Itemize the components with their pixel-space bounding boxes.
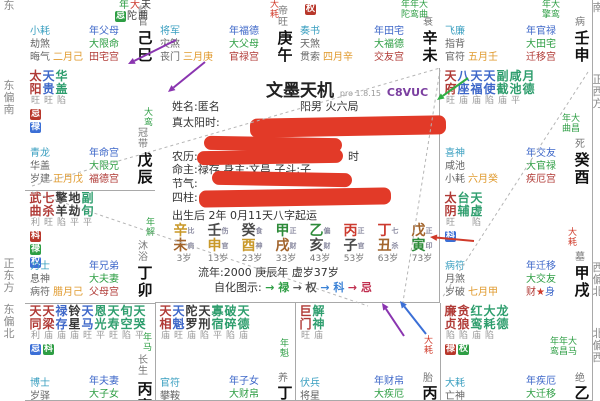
transformation-badge: 忌 [115,11,126,22]
ganzhi-label: 辛未 [422,30,438,64]
dayun-column[interactable]: 辛比未肩3岁 [168,224,200,264]
flow-year-line: 流年:2000 庚辰年 虚岁37岁 [198,266,339,279]
god-label: 攀鞍 [160,390,180,401]
god-label: 岁驿 [30,390,50,401]
god-label: 咸池 [445,160,465,173]
god-label: 贯索四月辛 [300,51,353,64]
flow-month-label: 五月壬 [468,52,498,63]
star: 龙德 [496,305,509,331]
ganzhi-label: 庚午 [277,30,293,64]
god-label: 灾煞 [160,38,180,51]
star: 天同利忌 [29,305,42,355]
transformation-badge: 忌 [30,109,41,120]
god-label: 官符五月壬 [445,51,498,64]
god-label: 月煞 [445,273,465,286]
star: 天魁旺 [172,305,185,342]
ganzhi-label: 癸酉 [574,152,590,186]
star: 七杀旺 [42,192,55,229]
star: 台辅 [457,192,470,218]
star-list: 天相庙天魁旺陀罗庙天刑陷寡宿平破碎陷天德庙 [159,305,250,342]
palace-name-label: 大财帛 [229,388,259,401]
palace-cell-丑[interactable]: 天相庙天魁旺陀罗庙天刑陷寡宿平破碎陷天德庙年魁官符攀鞍年子女大财帛养丁丑 [155,303,296,401]
palace-name-label: 交友宫 [374,51,404,64]
palace-cell-午[interactable]: 大耗将军灾煞丧门三月庚年福德大父母官禄宫帝旺庚午 [155,0,296,69]
star: 天府旺 [444,70,457,107]
god-label: 亡神 [445,390,465,401]
palace-name-label: 大田宅 [526,38,556,51]
star: 擎羊陷 [55,192,68,229]
life-stage-label: 衰 [422,17,434,28]
palace-name-label: 年夫妻 [89,375,119,388]
ganzhi-label: 丙寅 [137,381,153,401]
dayun-column[interactable]: 癸食酉神23岁 [236,224,268,264]
palace-name-label: 年兄弟 [89,260,119,273]
god-label: 大耗 [445,377,465,390]
life-stage-label: 沐浴 [137,241,149,263]
compass-label: 南 [592,2,600,14]
ganzhi-label: 己巳 [137,30,153,64]
star: 地劫平 [68,192,81,229]
ganzhi-label: 戊辰 [137,152,153,186]
palace-name-label: 年疾厄 [526,375,556,388]
palace-name-label: 大疾厄 [374,388,404,401]
star-list: 太阴旺科台辅天虚陷 [444,192,483,242]
ganzhi-label: 乙亥 [574,385,590,401]
god-label: 小耗 [30,25,50,38]
app-code: C8VUC [387,86,428,99]
transformation-badge: 忌 [30,344,41,355]
dayun-column[interactable]: 壬伤申官13岁 [202,224,234,264]
star: 天寿旺 [107,305,120,342]
palace-name-label: 大夫妻 [89,273,119,286]
god-label: 息神 [30,273,50,286]
star: 咸池平 [509,70,522,107]
life-stage-label: 养 [277,373,289,384]
palace-name-label: 迁移宫 [526,51,556,64]
name-line: 姓名:匿名 [172,100,220,113]
life-stage-label: 临官 [137,6,149,28]
palace-name-label: 年田宅 [374,25,404,38]
palace-name-label: 年迁移 [526,260,556,273]
redaction-bar [250,115,446,137]
star: 副截庙 [496,70,509,107]
palace-cell-卯[interactable]: 武曲利科禄权七杀旺擎羊陷地劫平副旬平年解力士息神病符腊月己年兄弟大夫妻父母宫沐浴… [25,190,156,304]
life-stage-label: 胎 [422,373,434,384]
transformation-badge: 权 [458,344,469,355]
star: 太阳旺忌禄 [29,70,42,133]
god-label: 丧门三月庚 [160,51,213,64]
palace-name-label: 大子女 [89,388,119,401]
redaction-bar [199,187,391,207]
god-label: 官符 [160,377,180,390]
dayun-column[interactable]: 丁七丑杀63岁 [372,224,404,264]
flow-month-label: 六月癸 [468,174,498,185]
palace-name-label: 疾厄宫 [526,173,556,186]
star: 陀罗庙 [185,305,198,342]
star: 天马旺 [81,305,94,342]
palace-name-label: 福德宫 [89,173,119,186]
transformation-badge: 禄 [30,122,41,133]
gender-bureau-line: 阳男 火六局 [300,100,359,113]
life-stage-label: 绝 [574,373,586,384]
star: 天德庙 [237,305,250,342]
god-label: 劫煞 [30,38,50,51]
palace-name-label: 财★身 [526,286,555,299]
star: 天刑陷 [198,305,211,342]
god-label: 华盖 [30,160,50,173]
palace-name-label: 大父母 [229,38,259,51]
god-label: 将军 [160,25,180,38]
star-list: 廉贞陷禄贪狼陷权红鸾庙大耗陷龙德 [444,305,509,355]
compass-label: 西偏北 [592,262,600,298]
flow-star-label: 擎鸾 [542,10,560,20]
god-label: 力士 [30,260,50,273]
star-list: 武曲利科禄权七杀旺擎羊陷地劫平副旬平 [29,192,94,268]
info-line: 四柱: [172,191,198,204]
flow-star-label: 大耗 [567,228,578,248]
flow-star-label: 年大 [542,0,560,10]
transformation-badge: 科 [30,231,41,242]
palace-cell-巳[interactable]: 年大天忌陀曲小耗劫煞晦气二月己年父母大限命田宅宫临官己巳 [25,0,156,69]
star: 红鸾庙 [470,305,483,342]
flow-star-label: 大鸾 [143,108,154,128]
life-stage-label: 帝旺 [277,6,289,28]
compass-label: 正西方 [592,74,600,110]
palace-cell-酉[interactable]: 天府旺八座庙天福庙天使陷副截庙咸池平月德年大曲昌喜神咸池小耗六月癸年交友大官禄疾… [440,68,593,191]
star-list: 巨门旺解神庙 [299,305,325,342]
star: 恩光平 [94,305,107,342]
star: 天虚陷 [470,192,483,229]
life-stage-label: 病 [574,17,586,28]
palace-cell-亥[interactable]: 廉贞陷禄贪狼陷权红鸾庙大耗陷龙德年年大鸾昌马大耗亡神年疾厄大迁移绝乙亥 [440,303,593,401]
god-label: 青龙 [30,147,50,160]
transformation-badge: 禄 [30,244,41,255]
star: 太阴旺科 [444,192,457,242]
star: 旬空陷 [120,305,133,342]
flow-star-label: 鸾昌马 [550,347,577,357]
flow-month-label: 腊月己 [53,287,83,298]
star: 天使陷 [483,70,496,107]
star: 解神庙 [312,305,325,342]
flow-month-label: 七月甲 [468,287,498,298]
star: 天梁庙科 [42,305,55,355]
dayun-column[interactable]: 丙正子官53岁 [338,224,370,264]
palace-cell-子[interactable]: 巨门旺解神庙大耗伏兵将星年财帛大疾厄胎丙子 [295,303,441,401]
palace-name-label: 年交友 [526,147,556,160]
god-label: 博士 [30,377,50,390]
transformation-badge: 科 [445,231,456,242]
god-label: 岁建正月戊 [30,173,83,186]
palace-cell-戌[interactable]: 太阴旺科台辅天虚陷大耗病符月煞岁破七月甲年迁移大交友财★身墓甲戌 [440,190,593,304]
star-list: 天同利忌天梁庙科禄存庙铃星庙天马旺恩光平天寿旺旬空陷天哭平 [29,305,146,355]
god-label: 指背 [445,38,465,51]
compass-label: 正东方 [3,258,15,294]
star: 华盖陷 [55,70,68,107]
god-label: 晦气二月己 [30,51,83,64]
ganzhi-label: 丁丑 [277,385,293,401]
info-line: 出生后 2年 0月11天八字起运 [172,209,317,222]
flow-month-label: 四月辛 [323,52,353,63]
palace-name-label: 大福德 [374,38,404,51]
star: 破碎陷 [224,305,237,342]
compass-label: 北偏西 [592,328,600,364]
star: 天相庙 [159,305,172,342]
life-stage-label: 死 [574,139,586,150]
info-line: 节气: [172,177,198,190]
palace-name-label: 官禄宫 [229,51,259,64]
flow-star-label: 年大 [562,114,580,124]
star: 副旬平 [81,192,94,229]
palace-name-label: 父母宫 [89,286,119,299]
palace-cell-辰[interactable]: 太阳旺忌禄天贵旺华盖陷大鸾青龙华盖岁建正月戊年命宫大限兄福德宫冠带戊辰 [25,68,156,191]
god-label: 岁破七月甲 [445,286,498,299]
app-title: 文墨天机 pro 1.8.15 C8VUC [266,76,428,101]
palace-name-label: 田宅宫 [89,51,119,64]
app-version: pro 1.8.15 [340,89,381,98]
palace-name-label: 大限兄 [89,160,119,173]
ganzhi-label: 丁卯 [137,265,153,299]
palace-name-label: 年父母 [89,25,119,38]
god-label: 伏兵 [300,377,320,390]
life-stage-label: 冠带 [137,128,149,150]
star: 廉贞陷禄 [444,305,457,355]
ziwei-astrology-app: 年大天忌陀曲小耗劫煞晦气二月己年父母大限命田宅宫临官己巳大耗将军灾煞丧门三月庚年… [0,0,600,400]
redaction-bar [212,171,352,187]
self-transformation-legend: 自化图示: → 禄 → 权 → 科 → 忌 [214,281,372,294]
dayun-column[interactable]: 戊正寅印73岁 [406,224,438,264]
transformation-badge: 科 [43,344,54,355]
transformation-badge: 禄 [445,344,456,355]
palace-cell-未[interactable]: 权年年大陀鸾曲奏书天煞贯索四月辛年田宅大福德交友宫衰辛未 [295,0,441,69]
star: 大耗陷 [483,305,496,342]
life-stage-label: 长生 [137,355,149,377]
flow-month-label: 三月庚 [183,52,213,63]
star: 天贵旺 [42,70,55,107]
god-label: 天煞 [300,38,320,51]
info-line: 农历:时 [172,150,198,163]
palace-name-label: 年命宫 [89,147,119,160]
star: 武曲利科禄权 [29,192,42,268]
life-stage-label: 墓 [574,252,586,263]
god-label: 病符 [445,260,465,273]
palace-name-label: 大官禄 [526,160,556,173]
compass-label: 东 [3,0,15,12]
god-label: 病符腊月己 [30,286,83,299]
flow-star-label: 曲昌 [562,124,580,134]
flow-star-label: 年马 [142,333,153,353]
star: 贪狼陷权 [457,305,470,355]
palace-name-label: 年福德 [229,25,259,38]
god-label: 喜神 [445,147,465,160]
star: 月德 [522,70,535,96]
dayun-column[interactable]: 甲正戌财33岁 [270,224,302,264]
flow-star-label: 年魁 [279,339,290,359]
palace-name-label: 大交友 [526,273,556,286]
palace-cell-申[interactable]: 年大擎鸾飞廉指背官符五月壬年官禄大田宅迁移宫病壬申 [440,0,593,69]
palace-name-label: 大限命 [89,38,119,51]
ganzhi-label: 壬申 [574,30,590,64]
palace-name-label: 年子女 [229,375,259,388]
god-label: 小耗六月癸 [445,173,498,186]
redaction-bar [197,149,343,166]
star: 寡宿平 [211,305,224,342]
star: 八座庙 [457,70,470,107]
palace-name-label: 年官禄 [526,25,556,38]
compass-label: 东偏南 [3,80,15,116]
flow-star-label: 年年大 [550,337,577,347]
flow-month-label: 正月戊 [53,174,83,185]
transformation-badge: 权 [305,4,316,15]
star: 禄存庙 [55,305,68,342]
star: 天福庙 [470,70,483,107]
god-label: 飞廉 [445,25,465,38]
flow-month-label: 二月己 [53,52,83,63]
ganzhi-label: 丙子 [422,385,438,401]
dayun-column[interactable]: 乙偏亥财43岁 [304,224,336,264]
star-list: 天府旺八座庙天福庙天使陷副截庙咸池平月德 [444,70,535,107]
god-label: 奏书 [300,25,320,38]
compass-label: 东偏北 [3,304,15,340]
flow-star-label: 年年大 [401,0,428,10]
star: 巨门旺 [299,305,312,342]
palace-name-label: 年财帛 [374,375,404,388]
god-label: 将星 [300,390,320,401]
palace-name-label: 大迁移 [526,388,556,401]
ganzhi-label: 甲戌 [574,265,590,299]
star-list: 太阳旺忌禄天贵旺华盖陷 [29,70,68,133]
info-line: 真太阳时: [172,116,220,129]
palace-cell-寅[interactable]: 天同利忌天梁庙科禄存庙铃星庙天马旺恩光平天寿旺旬空陷天哭平年马博士岁驿年夫妻大子… [25,303,156,401]
flow-star-label: 大耗 [423,336,434,356]
star: 铃星庙 [68,305,81,342]
